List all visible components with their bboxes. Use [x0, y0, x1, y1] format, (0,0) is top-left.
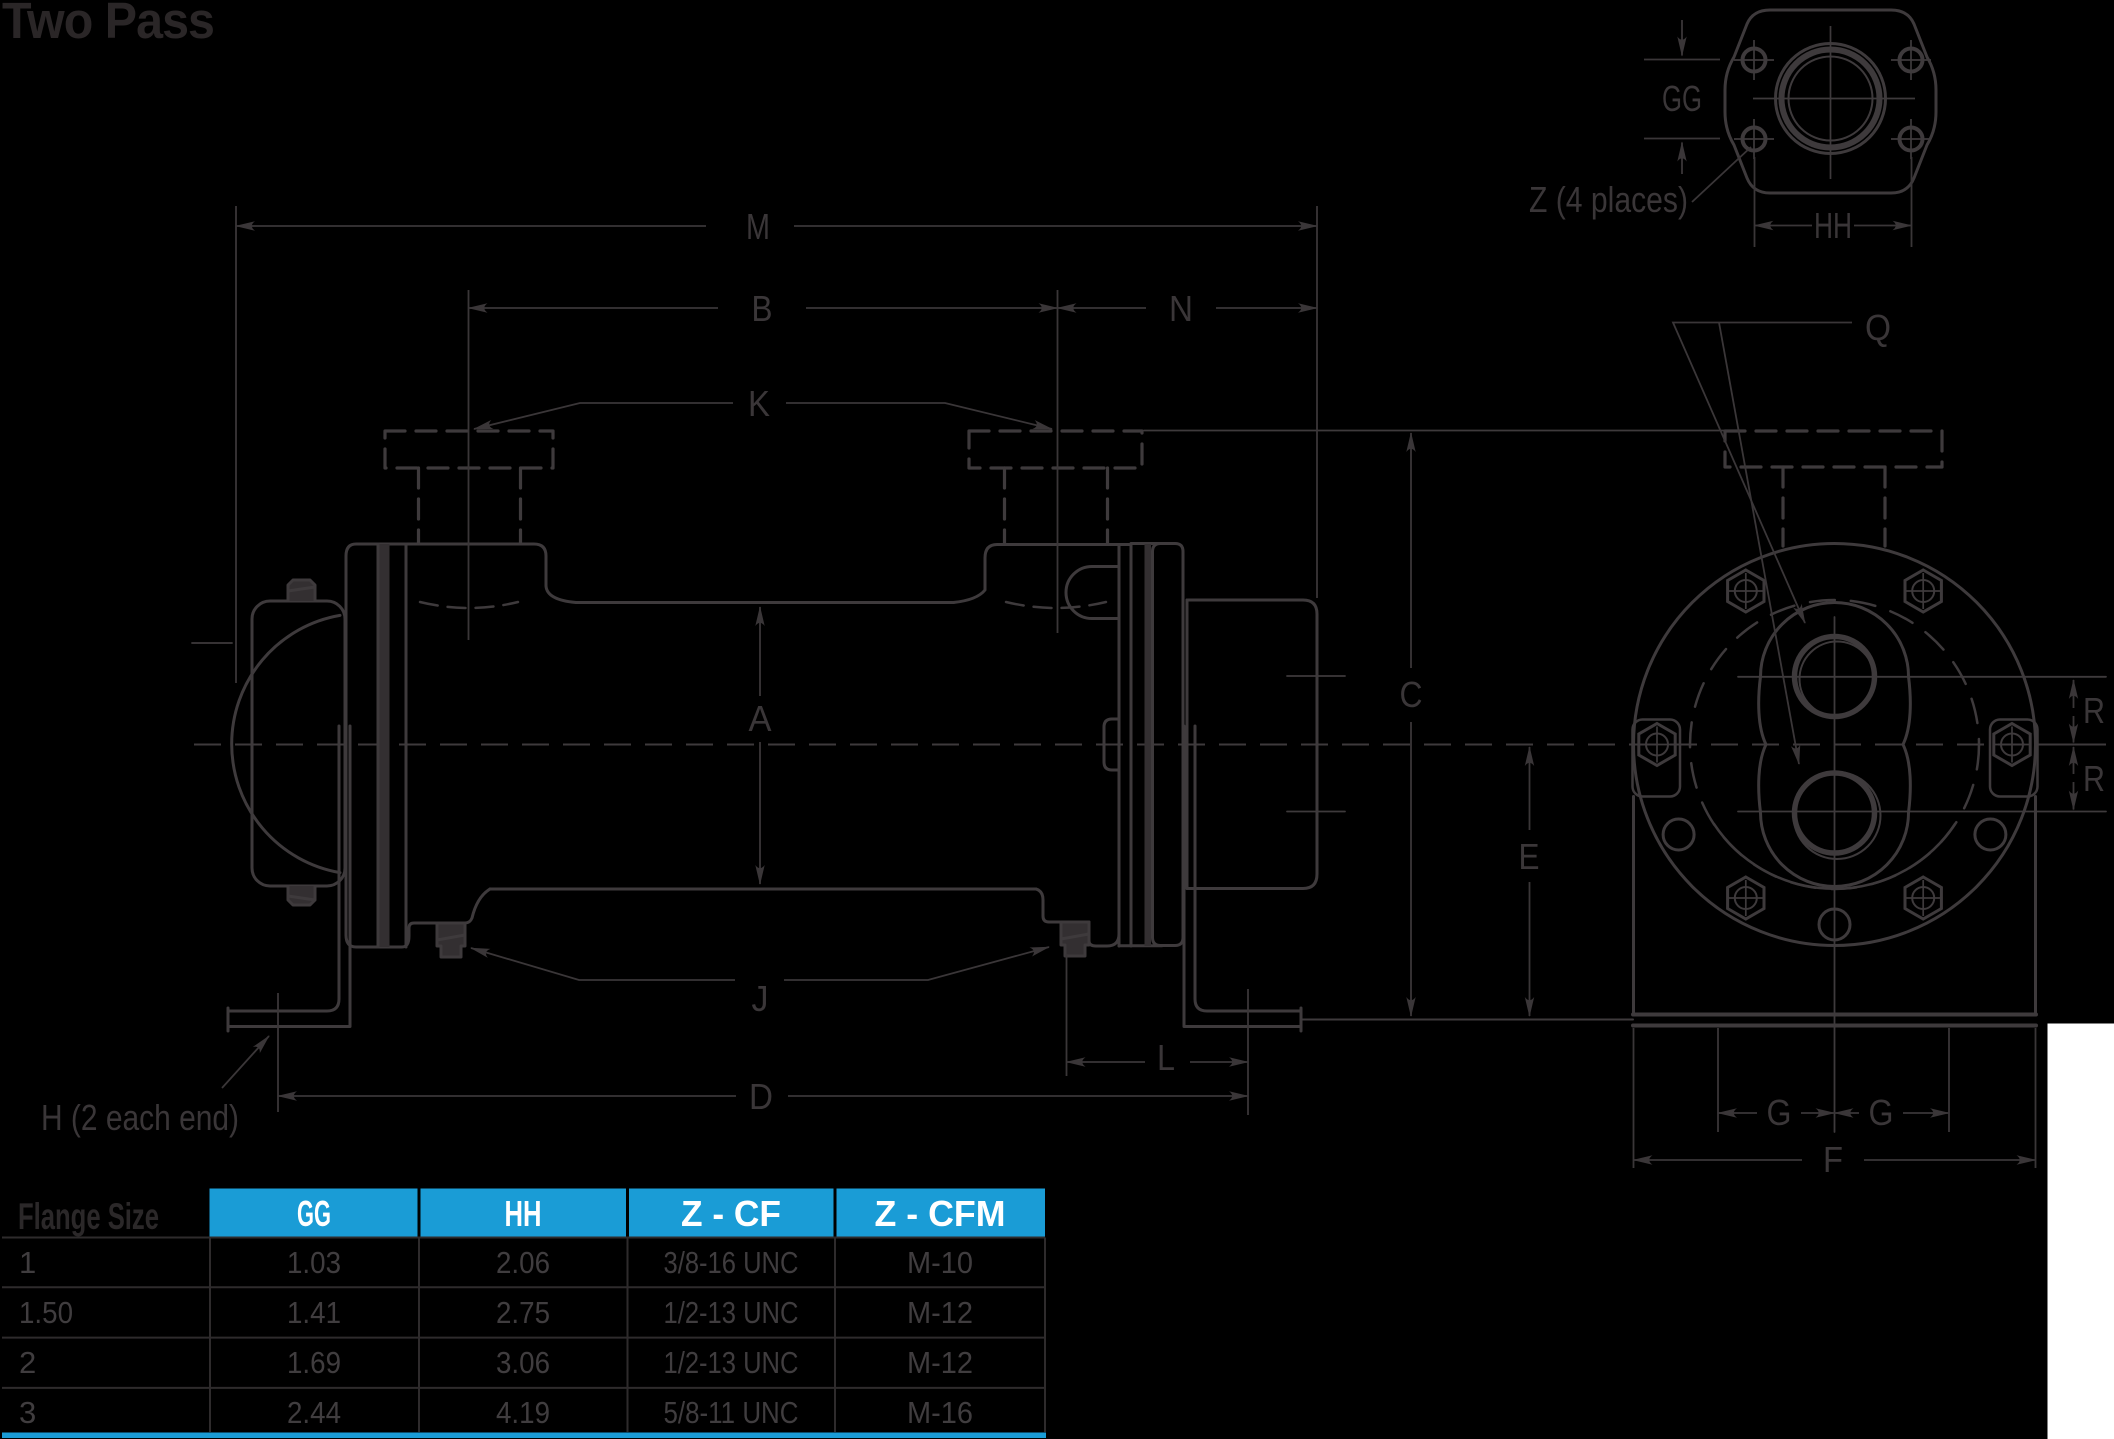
svg-text:2.75: 2.75 — [496, 1295, 550, 1330]
svg-text:A: A — [749, 698, 772, 739]
svg-text:K: K — [748, 383, 770, 424]
svg-text:HH: HH — [505, 1193, 542, 1234]
svg-text:G: G — [1767, 1092, 1792, 1133]
svg-text:M: M — [746, 206, 770, 247]
svg-text:3: 3 — [19, 1395, 36, 1430]
svg-text:H (2 each end): H (2 each end) — [41, 1097, 239, 1138]
svg-text:3/8-16 UNC: 3/8-16 UNC — [664, 1245, 799, 1280]
svg-text:1.50: 1.50 — [19, 1295, 73, 1330]
svg-text:M-16: M-16 — [907, 1395, 973, 1430]
svg-text:D: D — [749, 1076, 773, 1117]
svg-text:B: B — [752, 288, 773, 329]
svg-text:5/8-11 UNC: 5/8-11 UNC — [664, 1395, 799, 1430]
svg-text:R: R — [2083, 758, 2105, 799]
svg-text:Z - CF: Z - CF — [681, 1193, 781, 1234]
svg-text:1/2-13 UNC: 1/2-13 UNC — [664, 1345, 799, 1380]
svg-text:R: R — [2083, 690, 2105, 731]
svg-text:3.06: 3.06 — [496, 1345, 550, 1380]
svg-text:1.41: 1.41 — [287, 1295, 341, 1330]
svg-text:Z - CFM: Z - CFM — [875, 1193, 1006, 1234]
svg-text:M-12: M-12 — [907, 1295, 973, 1330]
svg-text:2.44: 2.44 — [287, 1395, 341, 1430]
svg-text:M-12: M-12 — [907, 1345, 973, 1380]
svg-text:N: N — [1169, 288, 1193, 329]
svg-text:2.06: 2.06 — [496, 1245, 550, 1280]
svg-text:1: 1 — [19, 1245, 36, 1280]
svg-text:L: L — [1157, 1037, 1175, 1078]
svg-text:M-10: M-10 — [907, 1245, 973, 1280]
svg-text:Two Pass: Two Pass — [2, 0, 214, 49]
svg-text:HH: HH — [1814, 205, 1852, 246]
svg-text:C: C — [1400, 674, 1423, 715]
svg-text:1.69: 1.69 — [287, 1345, 341, 1380]
svg-text:Z (4 places): Z (4 places) — [1529, 179, 1688, 220]
svg-text:F: F — [1823, 1139, 1843, 1180]
svg-text:4.19: 4.19 — [496, 1395, 550, 1430]
svg-text:GG: GG — [1662, 78, 1702, 119]
svg-text:J: J — [752, 978, 769, 1019]
svg-text:Q: Q — [1865, 307, 1891, 348]
svg-text:2: 2 — [19, 1345, 36, 1380]
svg-text:1/2-13 UNC: 1/2-13 UNC — [664, 1295, 799, 1330]
svg-text:E: E — [1519, 836, 1540, 877]
svg-text:G: G — [1869, 1092, 1894, 1133]
svg-text:GG: GG — [297, 1193, 331, 1234]
svg-text:Flange Size: Flange Size — [18, 1196, 159, 1237]
svg-text:1.03: 1.03 — [287, 1245, 341, 1280]
